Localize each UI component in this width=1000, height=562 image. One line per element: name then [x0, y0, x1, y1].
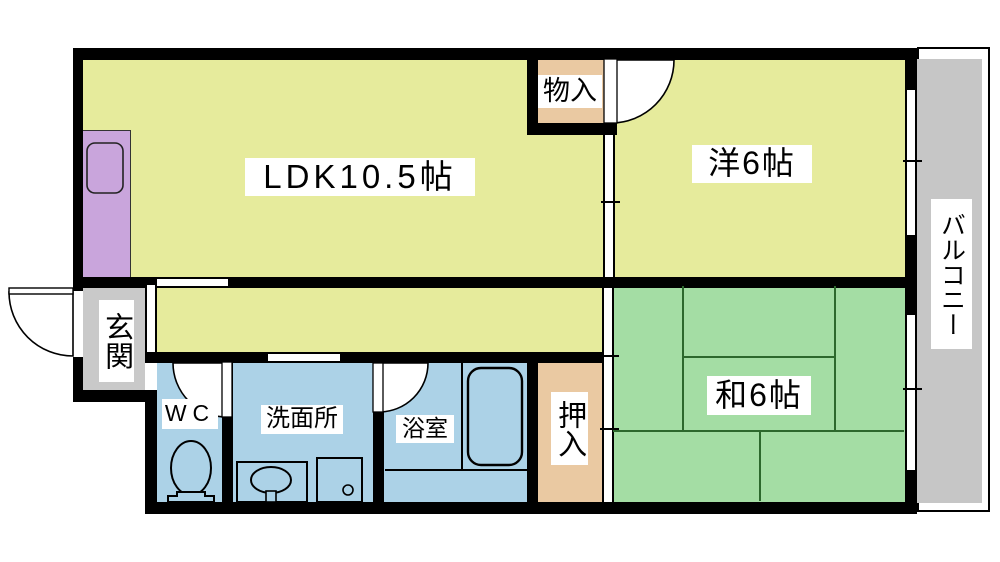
washbasin-icon: [237, 462, 307, 502]
label-western-room: 洋6帖: [692, 145, 812, 183]
label-balcony: バルコニー: [931, 199, 972, 349]
entrance-swing-door-icon: [9, 288, 73, 356]
bathtub-icon: [468, 368, 522, 465]
label-bathroom: 浴室: [396, 415, 454, 443]
floor-plan: LDK10.5帖 洋6帖 和6帖 物入 玄関 WC 洗面所 浴室 押入 バルコニ…: [0, 0, 1000, 562]
label-wc: WC: [162, 399, 218, 429]
label-ldk: LDK10.5帖: [245, 158, 475, 196]
label-storage: 物入: [538, 75, 602, 108]
label-washroom: 洗面所: [261, 405, 343, 434]
bathroom-swing-door-icon: [373, 363, 428, 412]
plan-drawing-layer: [0, 0, 1000, 562]
label-closet: 押入: [551, 392, 588, 465]
kitchen-sink-icon: [87, 143, 123, 193]
western-room-swing-door-icon: [604, 59, 674, 123]
washing-machine-pan-icon: [317, 458, 362, 502]
toilet-icon: [168, 441, 214, 502]
label-japanese-room: 和6帖: [707, 376, 811, 415]
label-entrance: 玄関: [99, 300, 134, 382]
